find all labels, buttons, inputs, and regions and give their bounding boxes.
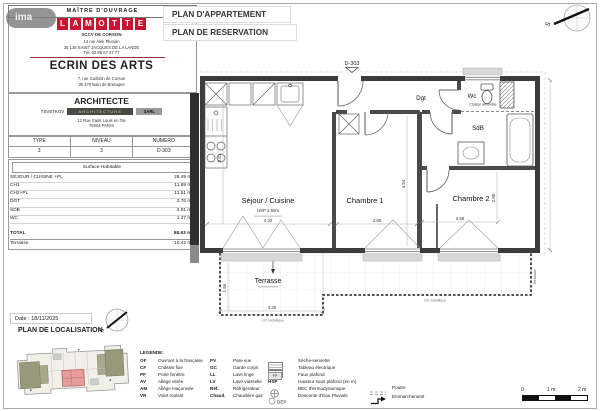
terrace-side-label: Terrasse <box>532 269 537 285</box>
dim-sejour-width: 4.32 <box>264 218 273 223</box>
legend-abbr: OF <box>140 358 146 363</box>
logo-letter: A <box>70 18 82 30</box>
dim-ch1-width: 2.80 <box>373 218 382 223</box>
legend-abbr: AV <box>140 379 146 384</box>
compass-label: S <box>99 327 106 334</box>
scale-label-1m: 1 m <box>547 387 555 393</box>
legend-label: Réfrigérateur <box>233 386 260 391</box>
project-address-2: 35 470 Bain de Bretagne <box>8 82 195 88</box>
legend-abbr: GC <box>210 365 217 370</box>
legend-abbr: VR <box>140 393 146 398</box>
dim-terrace-height: 1.66 <box>222 283 227 292</box>
surface-label: SÉJOUR / CUISINE +PL <box>10 174 63 182</box>
project-name: ECRIN DES ARTS <box>8 60 195 72</box>
legend-item: CF <box>140 365 146 370</box>
architect-address-2: 75004 PARIS <box>8 123 195 129</box>
removable-partition-label: Cloison amovible <box>469 103 496 107</box>
legend-abbr: LV <box>210 379 216 384</box>
step-arrow-icon <box>370 392 387 410</box>
dim-ch1-height: 4.54 <box>401 179 406 188</box>
dim-sejour-height: 3.81 <box>217 153 222 162</box>
compass-label: S <box>544 20 552 27</box>
surface-label: DGT <box>10 198 20 206</box>
legend-item: Chaud. <box>210 393 226 398</box>
room-label-dgt: Dgt <box>416 95 426 102</box>
legend-label: Hauteur sous plafond (en m) <box>298 379 356 384</box>
legend-label: Garde corps <box>233 365 258 370</box>
legend-label: Châssis fixe <box>158 365 183 370</box>
dim-ch2-height: 2.80 <box>491 193 496 202</box>
owner-phone: Tél. 02 99 67 27 77 <box>8 50 195 56</box>
legend-item: LL <box>210 372 216 377</box>
door-swings <box>338 81 459 192</box>
architect-name: TSVETKOV <box>41 109 64 114</box>
legend-item: AV <box>140 379 146 384</box>
legend-abbr: PV <box>210 358 216 363</box>
room-label-ch2: Chambre 2 <box>452 194 489 203</box>
legend-abbr: CF <box>140 365 146 370</box>
room-label-ch1: Chambre 1 <box>346 196 383 205</box>
dim-ch2-width: 3.58 <box>456 216 465 221</box>
legend-label: Poutre <box>392 385 406 390</box>
unit-value-numero: D-303 <box>132 146 195 158</box>
rainwater-downpipe-icon: DEP <box>268 392 294 410</box>
legend-item: GC <box>210 365 217 370</box>
architect-suffix: SARL <box>136 108 162 115</box>
unit-info-table: TYPE NIVEAU NUMERO 3 3 D-303 <box>8 136 195 157</box>
guardrail-note: GC métallique <box>262 319 284 323</box>
legend-item: AM <box>140 386 147 391</box>
room-label-sdb: SdB <box>472 125 484 132</box>
dep-abbr: DEP <box>277 399 286 404</box>
surface-total-row: TOTAL 58.63 m² <box>10 230 193 238</box>
legend-label: Lave linge <box>233 372 254 377</box>
legend-label: Porte fenêtre <box>158 372 185 377</box>
legend-label: Chaudière gaz <box>233 393 263 398</box>
legend-abbr: LL <box>210 372 216 377</box>
legend-item: PF <box>140 372 146 377</box>
surface-terrace-row: Terrasse 10.42 m² <box>10 239 193 248</box>
legend-label: Faux plafond <box>298 372 325 377</box>
logo-letter: T <box>122 18 134 30</box>
dim-terrace-width: 3.35 <box>268 305 277 310</box>
compass-north: S <box>544 5 590 31</box>
date-field: Date : 18/11/2025 <box>10 313 92 324</box>
hsp-label: HSP 2.50m <box>257 208 279 213</box>
floor-plan: Terrasse GC métallique GC métallique Ter… <box>195 0 600 345</box>
legend-label: Lave vaisselle <box>233 379 262 384</box>
hsp-abbr: HSP <box>268 379 277 384</box>
surface-total-label: TOTAL <box>10 230 26 238</box>
surface-label: CH2+PL <box>10 190 28 198</box>
plan-sheet: MAÎTRE D'OUVRAGE L A M O T T E SCCV DE C… <box>0 0 600 411</box>
legend-label: Descente d'Eau Pluviale <box>298 393 348 398</box>
legend-label: Pare vue <box>233 358 251 363</box>
legend-label: Tableau électrique <box>298 365 335 370</box>
legend-label: Ouvrant à la française <box>158 358 203 363</box>
logo-letter: M <box>83 18 95 30</box>
unit-entrance-label: D-303 <box>345 61 360 73</box>
terrace-label: Terrasse <box>255 278 282 285</box>
surface-table-title: Surface Habitable <box>12 162 192 173</box>
red-divider <box>30 57 165 58</box>
legend-label: BEC thermodynamique <box>298 386 346 391</box>
scale-bar <box>522 395 588 401</box>
legend-label: Allège vitrée <box>158 379 183 384</box>
legend-abbr: AM <box>140 386 147 391</box>
unit-value-type: 3 <box>8 146 71 158</box>
legend-label: Sèche-serviette <box>298 358 330 363</box>
localisation-map <box>10 338 135 406</box>
legend-label: Emmarchement <box>392 394 424 399</box>
logo-letter: E <box>135 18 147 30</box>
surface-label: CH1 <box>10 182 20 190</box>
technical-shaft <box>500 82 514 108</box>
room-label-wc: Wc <box>468 94 477 100</box>
surface-label: SDB <box>10 207 20 215</box>
unit-value-niveau: 3 <box>70 146 133 158</box>
architect-heading: ARCHITECTE <box>8 96 195 106</box>
logo-letter: T <box>109 18 121 30</box>
building-wing-right <box>105 349 124 376</box>
architect-identity: TSVETKOV ARCHITECTURE SARL <box>8 108 195 115</box>
closet-pl <box>339 114 359 134</box>
watermark-overlay: ima <box>6 8 56 28</box>
guardrail-note-2: GC métallique <box>424 299 446 303</box>
legend-abbr: Réf. <box>210 386 219 391</box>
legend-item: OF <box>140 358 146 363</box>
legend-abbr: PF <box>140 372 146 377</box>
legend-item: LV <box>210 379 216 384</box>
legend-label: Allège maçonnée <box>158 386 194 391</box>
overhang-dashed-line <box>200 72 545 256</box>
building-wing-left <box>19 362 40 389</box>
legend-item: PV <box>210 358 216 363</box>
legend-item: VR <box>140 393 146 398</box>
localisation-title: PLAN DE LOCALISATION <box>18 327 103 334</box>
logo-letter: L <box>57 18 69 30</box>
architect-band: ARCHITECTURE <box>67 108 133 115</box>
room-label-sejour: Séjour / Cuisine <box>242 196 295 205</box>
compass-localisation: S <box>98 304 134 340</box>
legend-abbr: Chaud. <box>210 393 226 398</box>
terrace-area: Terrasse GC métallique GC métallique Ter… <box>218 253 537 323</box>
surface-label: WC <box>10 215 18 223</box>
logo-letter: O <box>96 18 108 30</box>
terrace-fineprint <box>258 286 278 287</box>
legend-label: Volet roulant <box>158 393 184 398</box>
legend-title: LEGENDE: <box>140 350 164 355</box>
sejour-fineprint <box>254 216 282 217</box>
legend-item: Réf. <box>210 386 219 391</box>
surface-row: WC 1.27 m² <box>10 215 193 224</box>
scale-label-2m: 2 m <box>578 387 586 393</box>
scale-label-0: 0 <box>521 387 524 393</box>
unit-number: D-303 <box>345 61 360 67</box>
surface-terrace-label: Terrasse <box>10 240 28 248</box>
